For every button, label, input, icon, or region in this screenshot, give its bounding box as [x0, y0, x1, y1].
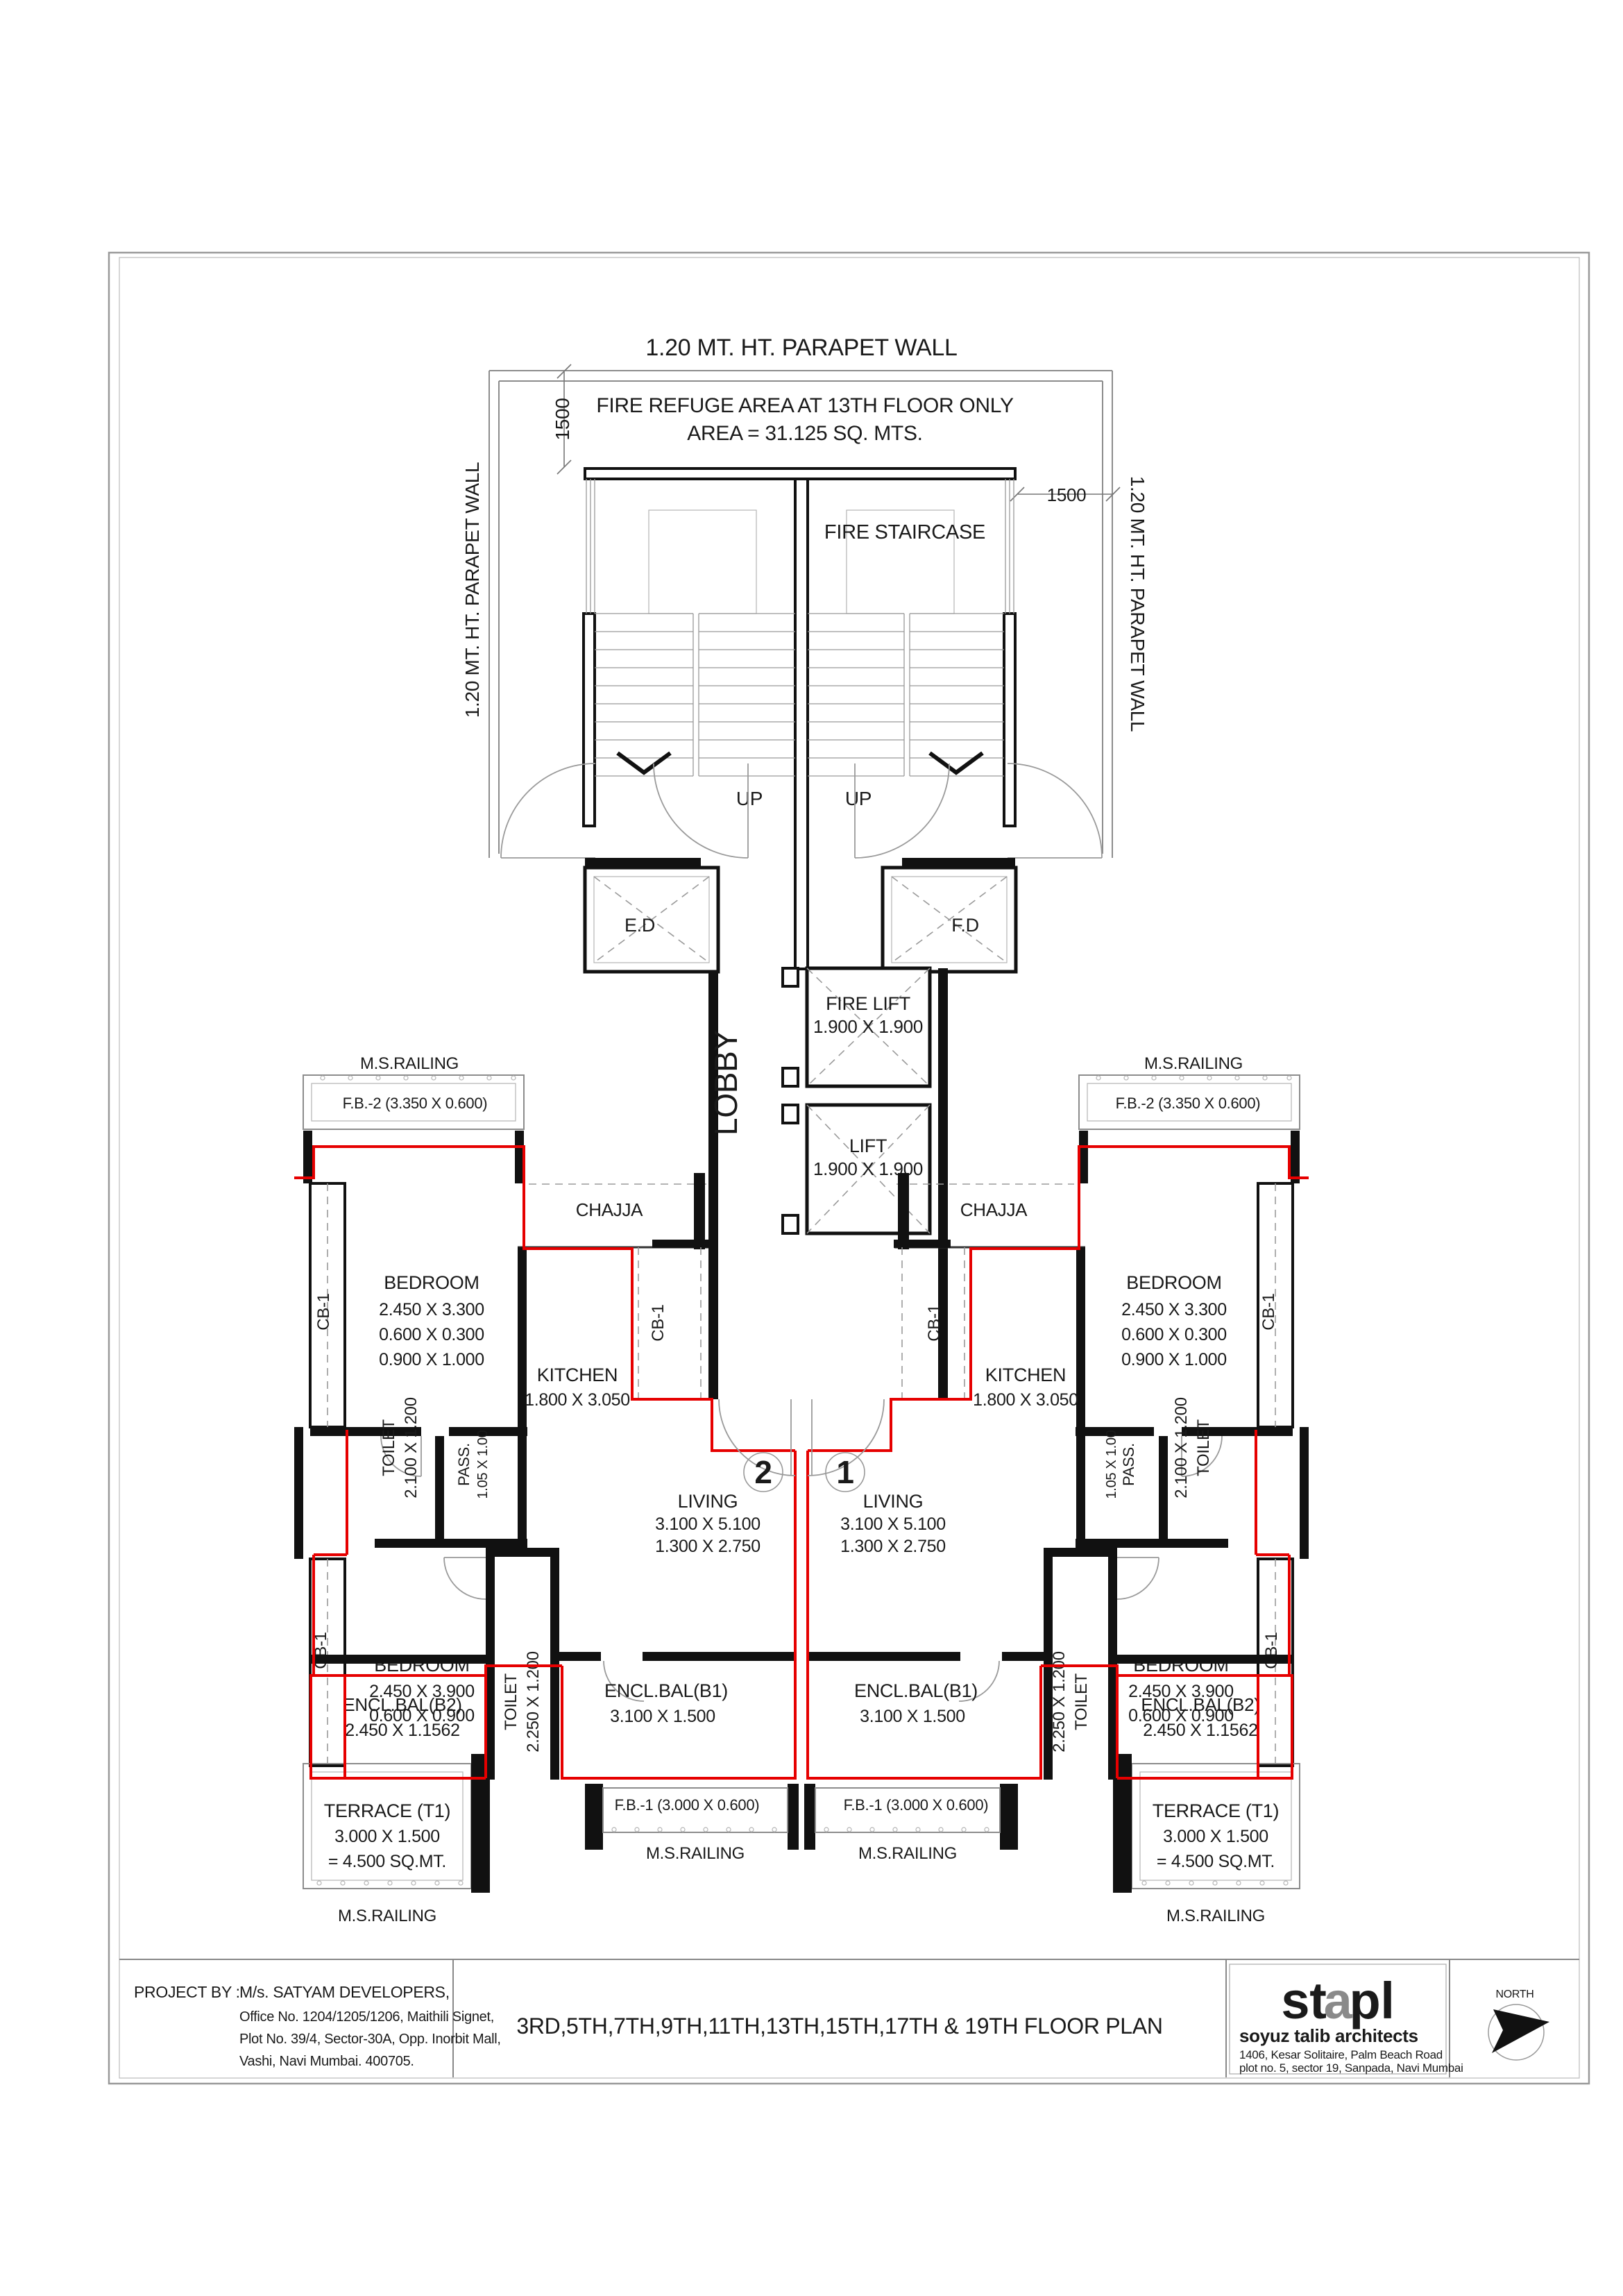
bedroom-dim: 0.900 X 1.000: [379, 1350, 484, 1369]
kitchen-dim: 1.800 X 3.050: [525, 1390, 630, 1410]
encl-b2-dim: 2.450 X 1.1562: [345, 1721, 459, 1740]
terrace-area: = 4.500 SQ.MT.: [328, 1852, 446, 1871]
terrace-dim: 3.000 X 1.500: [334, 1827, 440, 1846]
toilet-label: TOILET: [1194, 1419, 1213, 1476]
left-wing: M.S.RAILING F.B.-2 (3.350 X 0.600) CB-1 …: [294, 1054, 799, 1925]
living-right: LIVING 3.100 X 5.100 1.300 X 2.750: [840, 1491, 946, 1556]
flat1-number: 1: [836, 1454, 853, 1490]
encl-bal-b1-right: ENCL.BAL(B1) 3.100 X 1.500: [806, 1652, 1044, 1726]
living-dim: 3.100 X 5.100: [840, 1514, 946, 1534]
stair-arrow-left: [618, 753, 670, 773]
cb1-label: CB-1: [1259, 1293, 1278, 1330]
fire-staircase-label: FIRE STAIRCASE: [824, 521, 985, 543]
chajja-label: CHAJJA: [960, 1199, 1028, 1220]
kitchen-dim: 1.800 X 3.050: [973, 1390, 1078, 1410]
living-label: LIVING: [678, 1491, 738, 1512]
fb1-balcony-right: F.B.-1 (3.000 X 0.600) M.S.RAILING: [804, 1784, 1018, 1863]
up-label-left: UP: [736, 788, 763, 809]
pass-label: PASS.: [455, 1443, 473, 1486]
firm-addr2: plot no. 5, sector 19, Sanpada, Navi Mum…: [1239, 2061, 1463, 2075]
bedroom-label: BEDROOM: [384, 1272, 479, 1293]
cb1-kitchen-right: CB-1: [925, 1304, 944, 1341]
encl-b1-dim: 3.100 X 1.500: [860, 1707, 965, 1726]
pass-dim: 1.05 X 1.00: [1104, 1430, 1119, 1499]
refuge-line1: FIRE REFUGE AREA AT 13TH FLOOR ONLY: [596, 394, 1014, 417]
kitchen-label: KITCHEN: [537, 1365, 618, 1385]
toilet-label: TOILET: [1072, 1673, 1091, 1730]
developer-addr2: Plot No. 39/4, Sector-30A, Opp. Inorbit …: [239, 2032, 501, 2047]
ms-railing-bottom-right: M.S.RAILING: [1166, 1907, 1265, 1925]
cb1-box-top-right: CB-1: [1258, 1183, 1293, 1427]
north-indicator: NORTH: [1488, 1989, 1549, 2060]
encl-b2-dim: 2.450 X 1.1562: [1143, 1721, 1257, 1740]
pass-dim: 1.05 X 1.00: [475, 1430, 491, 1499]
north-arrow-icon: [1492, 2009, 1549, 2053]
terrace-right: TERRACE (T1) 3.000 X 1.500 = 4.500 SQ.MT…: [1132, 1764, 1300, 1889]
terrace-left: TERRACE (T1) 3.000 X 1.500 = 4.500 SQ.MT…: [303, 1764, 471, 1889]
encl-b2-label: ENCL.BAL(B2): [343, 1694, 461, 1715]
toilet-label: TOILET: [380, 1419, 398, 1476]
title-block: PROJECT BY : M/s. SATYAM DEVELOPERS, Off…: [119, 1959, 1579, 2077]
bedroom-dim: 0.600 X 0.300: [379, 1325, 484, 1344]
fb1-balcony-left: F.B.-1 (3.000 X 0.600) M.S.RAILING: [585, 1784, 799, 1863]
parapet-top-label: 1.20 MT. HT. PARAPET WALL: [645, 335, 957, 361]
developer-name: M/s. SATYAM DEVELOPERS,: [239, 1983, 450, 2001]
fb2-left-label: F.B.-2 (3.350 X 0.600): [343, 1095, 488, 1112]
encl-b1-label: ENCL.BAL(B1): [604, 1680, 728, 1701]
kitchen-label: KITCHEN: [985, 1365, 1066, 1385]
floor-plan-drawing: 1.20 MT. HT. PARAPET WALL FIRE REFUGE AR…: [0, 0, 1623, 2296]
dimension-right-1500: 1500: [1010, 484, 1120, 505]
dim-right-text: 1500: [1047, 484, 1087, 505]
fd-shaft: F.D: [883, 868, 1016, 972]
bedroom1-left: BEDROOM 2.450 X 3.300 0.600 X 0.300 0.90…: [379, 1272, 484, 1369]
bedroom1-right: BEDROOM 2.450 X 3.300 0.600 X 0.300 0.90…: [1121, 1272, 1227, 1369]
fire-lift-label: FIRE LIFT: [826, 993, 910, 1014]
bedroom-dim: 2.450 X 3.300: [379, 1300, 484, 1319]
firm-addr1: 1406, Kesar Solitaire, Palm Beach Road: [1239, 2048, 1443, 2061]
cb1-box-top-left: CB-1: [310, 1183, 345, 1427]
toilet-dim: 2.100 X 1.200: [402, 1397, 420, 1499]
dim-left-text: 1500: [552, 398, 573, 440]
lobby-label: LOBBY: [708, 1030, 744, 1136]
lift-label: LIFT: [849, 1136, 887, 1156]
toilet-label: TOILET: [502, 1673, 520, 1730]
encl-b1-label: ENCL.BAL(B1): [854, 1680, 978, 1701]
terrace-label: TERRACE (T1): [1153, 1800, 1279, 1821]
ms-railing-top-left: M.S.RAILING: [360, 1054, 459, 1073]
chajja-label: CHAJJA: [576, 1199, 643, 1220]
up-label-right: UP: [845, 788, 872, 809]
fb1-left-label: F.B.-1 (3.000 X 0.600): [615, 1796, 760, 1814]
ed-shaft: E.D: [585, 868, 718, 972]
bedroom-dim: 2.450 X 3.300: [1121, 1300, 1227, 1319]
living-dim: 3.100 X 5.100: [655, 1514, 760, 1534]
fb2-balcony-right: F.B.-2 (3.350 X 0.600): [1079, 1075, 1300, 1129]
encl-b1-dim: 3.100 X 1.500: [610, 1707, 715, 1726]
ms-railing-bottom-left: M.S.RAILING: [338, 1907, 436, 1925]
living-left: LIVING 3.100 X 5.100 1.300 X 2.750: [655, 1491, 760, 1556]
stapl-logo: stapl: [1281, 1972, 1394, 2029]
developer-addr1: Office No. 1204/1205/1206, Maithili Sign…: [239, 2009, 494, 2025]
bedroom-dim: 0.900 X 1.000: [1121, 1350, 1227, 1369]
fb2-balcony-left: F.B.-2 (3.350 X 0.600): [303, 1075, 524, 1129]
lift: LIFT 1.900 X 1.900: [807, 1105, 930, 1233]
ed-label: E.D: [624, 915, 655, 936]
parapet-right-label: 1.20 MT. HT. PARAPET WALL: [1127, 476, 1148, 732]
ms-railing-center-right: M.S.RAILING: [858, 1844, 957, 1863]
encl-bal-b1-left: ENCL.BAL(B1) 3.100 X 1.500: [559, 1652, 797, 1726]
bedroom-label: BEDROOM: [1126, 1272, 1221, 1293]
developer-addr3: Vashi, Navi Mumbai. 400705.: [239, 2054, 414, 2069]
flat2-number-badge: 2: [744, 1453, 783, 1492]
sheet-title: 3RD,5TH,7TH,9TH,11TH,13TH,15TH,17TH & 19…: [516, 2014, 1162, 2038]
project-by-label: PROJECT BY :: [134, 1983, 240, 2001]
cb1-kitchen-left: CB-1: [649, 1304, 668, 1341]
chajja-left: CHAJJA: [518, 1173, 709, 1249]
center-flats: 2 1 LIVING 3.100 X 5.100 1.300 X 2.750 L…: [655, 1399, 946, 1556]
kitchen-left: KITCHEN 1.800 X 3.050 CB-1: [518, 1247, 701, 1548]
kitchen-right: KITCHEN 1.800 X 3.050 CB-1: [902, 1247, 1085, 1548]
ms-railing-center-left: M.S.RAILING: [646, 1844, 745, 1863]
encl-b2-label: ENCL.BAL(B2): [1141, 1694, 1259, 1715]
terrace-dim: 3.000 X 1.500: [1163, 1827, 1268, 1846]
toilet-dim: 2.100 X 1.200: [1172, 1397, 1191, 1499]
terrace-area: = 4.500 SQ.MT.: [1157, 1852, 1275, 1871]
living-dim: 1.300 X 2.750: [655, 1537, 760, 1556]
north-label: NORTH: [1495, 1989, 1533, 2000]
living-label: LIVING: [863, 1491, 924, 1512]
ms-railing-top-right: M.S.RAILING: [1144, 1054, 1243, 1073]
firm-name: soyuz talib architects: [1239, 2025, 1418, 2046]
parapet-left-label: 1.20 MT. HT. PARAPET WALL: [461, 462, 483, 718]
bedroom-dim: 0.600 X 0.300: [1121, 1325, 1227, 1344]
flat2-number: 2: [754, 1454, 772, 1490]
refuge-line2: AREA = 31.125 SQ. MTS.: [687, 422, 922, 445]
pass-label: PASS.: [1120, 1443, 1137, 1486]
fb1-right-label: F.B.-1 (3.000 X 0.600): [844, 1796, 989, 1814]
fire-lift-size: 1.900 X 1.900: [813, 1016, 923, 1037]
fire-lift: FIRE LIFT 1.900 X 1.900: [807, 968, 930, 1086]
cb1-label: CB-1: [314, 1293, 333, 1330]
living-dim: 1.300 X 2.750: [840, 1537, 946, 1556]
terrace-label: TERRACE (T1): [324, 1800, 450, 1821]
fb2-right-label: F.B.-2 (3.350 X 0.600): [1116, 1095, 1261, 1112]
stair-arrow-right: [930, 753, 983, 773]
fd-label: F.D: [951, 915, 979, 936]
